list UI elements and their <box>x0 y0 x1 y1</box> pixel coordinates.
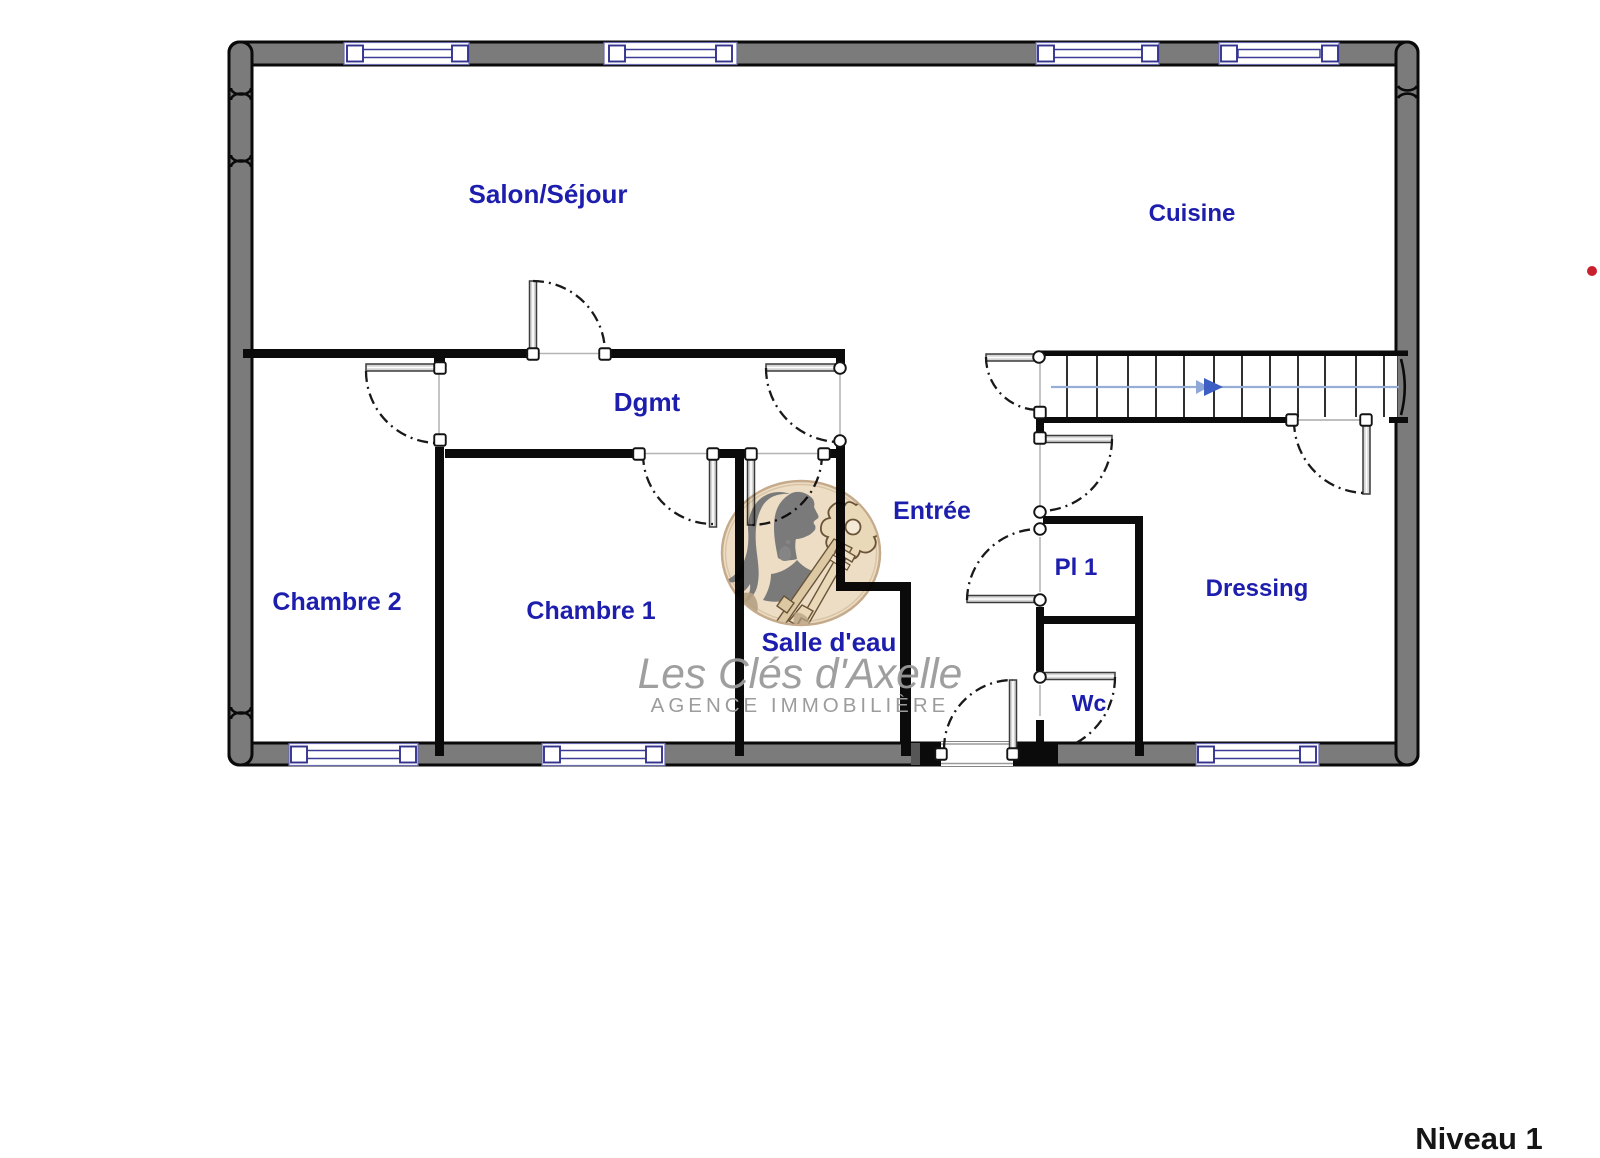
svg-text:Cuisine: Cuisine <box>1149 200 1236 227</box>
svg-text:Chambre 1: Chambre 1 <box>526 597 655 625</box>
svg-text:AGENCE IMMOBILIÈRE: AGENCE IMMOBILIÈRE <box>651 694 950 717</box>
svg-text:Salle d'eau: Salle d'eau <box>762 627 897 657</box>
svg-text:Salon/Séjour: Salon/Séjour <box>469 179 628 209</box>
svg-text:Les Clés d'Axelle: Les Clés d'Axelle <box>638 651 963 698</box>
svg-text:Niveau 1: Niveau 1 <box>1415 1121 1543 1156</box>
svg-text:Dgmt: Dgmt <box>614 387 681 417</box>
svg-text:Pl 1: Pl 1 <box>1055 554 1098 581</box>
svg-text:Dressing: Dressing <box>1206 575 1309 602</box>
svg-text:Chambre 2: Chambre 2 <box>272 588 401 616</box>
svg-text:Entrée: Entrée <box>893 497 971 525</box>
svg-text:Wc: Wc <box>1072 690 1107 716</box>
